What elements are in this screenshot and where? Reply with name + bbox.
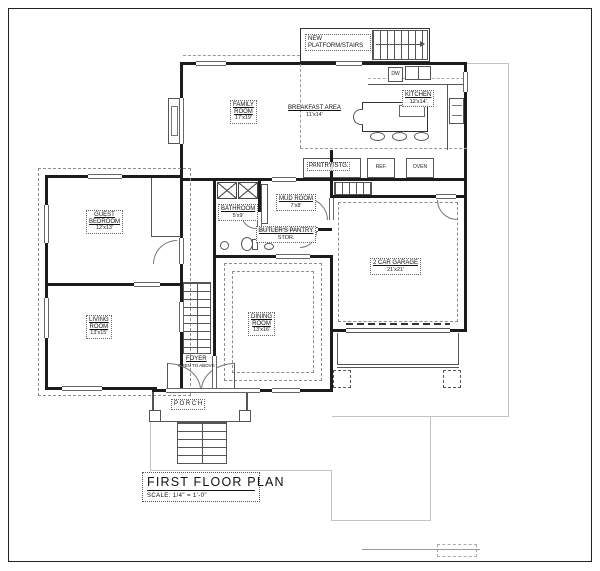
butlers-dim: STOR. — [259, 235, 313, 242]
cased-opening — [276, 254, 310, 259]
window — [44, 205, 49, 243]
room-label-butlers: BUTLER'S PANTRY STOR. — [256, 226, 316, 243]
breakfast-dim: 11'x14' — [288, 112, 341, 119]
site-line — [331, 520, 431, 521]
breakfast-name: BREAKFAST AREA — [288, 105, 341, 112]
entry-door-opening — [166, 388, 236, 393]
kitchen-sink — [405, 66, 431, 80]
room-label-bath: BATHROOM 5'x9' — [218, 204, 258, 221]
bath-name: BATHROOM — [221, 206, 255, 213]
window — [272, 388, 300, 393]
room-label-family: FAMILY ROOM 17'x19' — [230, 100, 257, 124]
room-label-porch: P O R C H — [171, 399, 205, 410]
kitchen-dim: 12'x14' — [405, 99, 431, 106]
interior-opening — [272, 177, 296, 182]
range-detail — [452, 105, 462, 106]
stool — [414, 132, 429, 141]
site-line — [467, 63, 509, 64]
pilaster — [443, 370, 461, 388]
stair-direction-line — [376, 44, 420, 45]
room-label-foyer: FOYER OPEN TO ABOVE — [176, 355, 217, 370]
sink-divider — [418, 67, 419, 79]
stair-rail — [197, 283, 198, 353]
main-stairs — [183, 282, 211, 354]
apron-edge — [458, 333, 459, 365]
counter-edge — [447, 85, 448, 150]
room-label-kitchen: KITCHEN 12'x14' — [402, 90, 434, 107]
interior-opening — [179, 302, 184, 332]
wall — [183, 178, 467, 181]
dining-dim: 13'x16' — [251, 327, 272, 334]
window — [463, 72, 468, 92]
room-label-guest: GUEST BEDROOM 12'x13' — [86, 210, 123, 234]
wall — [48, 283, 180, 286]
floor-plan-sheet: NEW PLATFORM/STAIRS DW PANTRY/STG. REF — [0, 0, 600, 571]
garage-door-jamb — [346, 328, 450, 329]
living-name: LIVING — [89, 317, 109, 324]
firebox — [171, 106, 178, 136]
window — [88, 174, 122, 179]
door-leaf — [167, 363, 168, 390]
dishwasher-label: DW — [388, 72, 403, 77]
roof-overhang-outline — [38, 168, 191, 396]
window — [196, 61, 226, 66]
room-label-breakfast: BREAKFAST AREA 11'x14' — [286, 104, 343, 119]
family-name: FAMILY — [233, 102, 254, 109]
window — [232, 388, 260, 393]
apron-edge — [337, 333, 338, 365]
room-label-platform: NEW PLATFORM/STAIRS — [305, 34, 371, 51]
washer — [217, 182, 237, 199]
window — [62, 386, 102, 391]
island-sink-bump — [353, 109, 363, 125]
family-dim: 17'x19' — [233, 115, 254, 122]
site-line — [332, 416, 509, 417]
site-line — [430, 416, 431, 521]
range — [449, 98, 464, 124]
range-detail — [452, 115, 462, 116]
revision-mark-box — [437, 544, 477, 557]
porch-steps — [177, 422, 227, 464]
porch-column — [239, 410, 251, 422]
pantry-label: PANTRY/STG. — [307, 162, 350, 171]
stool — [392, 132, 407, 141]
site-line — [331, 470, 332, 521]
drawing-scale: SCALE: 1/4" = 1'-0" — [147, 491, 255, 499]
apron-edge — [337, 367, 459, 368]
guest-dim: 12'x13' — [89, 225, 120, 232]
oven-label: OVEN — [406, 165, 434, 170]
garage-name: 2 CAR GARAGE — [373, 260, 418, 267]
mudroom-bench — [261, 184, 268, 224]
dryer — [238, 182, 258, 199]
kitchen-name: KITCHEN — [405, 92, 431, 99]
refrigerator-label: REF. — [367, 165, 395, 170]
wall — [213, 178, 216, 255]
bath-dim: 5'x9' — [221, 213, 255, 220]
room-label-dining: DINING ROOM 13'x16' — [248, 312, 275, 336]
garage-door-jamb — [346, 332, 450, 333]
room-label-living: LIVING ROOM 13'x15' — [86, 315, 112, 339]
service-door-opening — [436, 194, 456, 199]
title-block: FIRST FLOOR PLAN SCALE: 1/4" = 1'-0" — [142, 472, 260, 502]
door-opening — [329, 198, 334, 220]
mud-name: MUD ROOM — [279, 196, 313, 203]
porch-name: P O R C H — [174, 401, 202, 408]
site-line — [150, 470, 332, 471]
butlers-sink — [264, 243, 274, 250]
dimension-line — [362, 549, 480, 550]
closet-wall-line — [151, 178, 152, 236]
ceiling-break-line — [300, 148, 467, 149]
door-opening — [134, 282, 160, 287]
basement-stairs — [334, 182, 372, 195]
site-line — [508, 63, 509, 417]
garage-dim: 21'x21' — [373, 267, 418, 274]
counter-edge — [368, 84, 464, 85]
pilaster — [333, 370, 351, 388]
dining-name: DINING — [251, 314, 272, 321]
wall — [330, 150, 333, 195]
stair-arrow-icon — [420, 41, 425, 47]
wall — [450, 329, 467, 332]
pantry-text: PANTRY/STG. — [309, 163, 348, 170]
roof-overhang-line — [183, 55, 300, 56]
window — [44, 298, 49, 338]
step-rail — [202, 423, 203, 463]
room-label-mud: MUD ROOM 7'x8' — [276, 194, 316, 211]
door-leaf — [234, 363, 235, 390]
porch-column — [149, 410, 161, 422]
wall — [330, 329, 346, 332]
wall — [213, 255, 332, 258]
garage-door-panel — [346, 323, 450, 325]
closet-wall-line — [151, 236, 181, 237]
butlers-name: BUTLER'S PANTRY — [259, 228, 313, 235]
room-label-garage: 2 CAR GARAGE 21'x21' — [370, 258, 421, 275]
apron-edge — [337, 364, 459, 365]
door-opening — [179, 238, 184, 264]
mud-dim: 7'x8' — [279, 203, 313, 210]
window — [179, 98, 184, 144]
site-line — [150, 421, 151, 471]
foyer-sub: OPEN TO ABOVE — [178, 363, 215, 370]
platform-label-line2: PLATFORM/STAIRS — [308, 43, 368, 50]
bath-sink — [220, 241, 229, 250]
drawing-title: FIRST FLOOR PLAN — [147, 475, 255, 491]
living-dim: 13'x15' — [89, 330, 109, 337]
stool — [370, 132, 385, 141]
rear-door-opening — [336, 61, 362, 66]
